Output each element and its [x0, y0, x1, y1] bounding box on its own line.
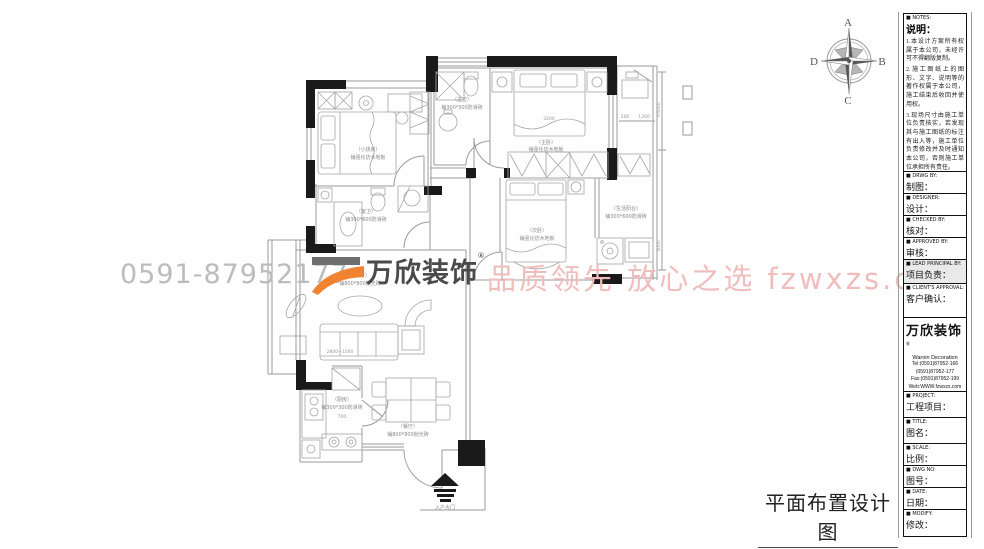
- watermark-logo: 万欣装饰®: [300, 250, 485, 302]
- svg-text:5000: 5000: [656, 240, 662, 252]
- drawing-title: 平面布置设计图: [758, 487, 898, 549]
- sheet-inner-border: [898, 12, 899, 538]
- company-name: 万欣装饰®: [906, 320, 964, 355]
- label-children-room: （小孩房）: [355, 146, 380, 153]
- kitchen-fixtures: [302, 368, 362, 458]
- svg-text:≈5000: ≈5000: [656, 102, 662, 117]
- svg-text:3200: 3200: [543, 116, 555, 122]
- field-principal: ■ LEAD PRINCIPAL BY:项目负责：: [904, 260, 966, 284]
- note-item: 3.现场尺寸由施工单位负责核实，若发现其与施工图纸的标注有出入等，施工单位负责修…: [906, 112, 964, 173]
- company-tel2: (0591)87952-177: [916, 369, 954, 377]
- svg-text:铺800*800抛光砖: 铺800*800抛光砖: [387, 431, 429, 438]
- compass-north-label: A: [844, 17, 852, 29]
- watermark-slogan: 品质领先 放心之选 fzwxzs.com: [487, 256, 965, 298]
- company-web: Web:WWW.fzwxzs.com: [909, 384, 962, 392]
- sheet-outer-border: [971, 12, 972, 538]
- dining-furniture: [372, 378, 450, 422]
- note-item: 2.施工图纸上的图形、文字、说明等的著作权属于本公司，施工结束后收回并使用权。: [906, 66, 964, 109]
- notes-heading: 说明：: [906, 21, 964, 36]
- field-approved-by: ■ APPROVED BY:审核：: [904, 238, 966, 260]
- logo-swoosh-icon: [308, 262, 370, 296]
- compass-icon: A B C D: [810, 17, 886, 107]
- svg-text:1260: 1260: [638, 114, 650, 120]
- label-utility-balcony: （生活阳台）: [611, 205, 641, 212]
- title-block: ■ NOTES: 说明： 1.本设计方案所有权属于本公司，未经许可不得翻版复制。…: [903, 13, 967, 537]
- label-master-bath: （主卫）: [452, 96, 472, 103]
- compass-east-label: B: [878, 56, 885, 68]
- svg-text:铺强化仿木地板: 铺强化仿木地板: [350, 154, 385, 161]
- notes-section: ■ NOTES: 说明： 1.本设计方案所有权属于本公司，未经许可不得翻版复制。…: [904, 14, 966, 172]
- field-checked-by: ■ CHECKED BY:核对：: [904, 216, 966, 238]
- compass-south-label: C: [844, 95, 851, 107]
- guest-bath-fixtures: [318, 186, 428, 246]
- logo-text: 万欣装饰®: [366, 251, 485, 290]
- field-scale: ■ SCALE:比例：: [904, 444, 966, 466]
- master-bedroom-furniture: [492, 70, 608, 178]
- label-master-bedroom: （主卧）: [536, 139, 556, 146]
- label-kitchen: （厨房）: [332, 396, 352, 403]
- company-tel: Tel:(0591)87952-166: [912, 361, 958, 369]
- field-dwg-no: ■ DWG NO:图号：: [904, 466, 966, 488]
- balcony-furniture: [597, 72, 653, 264]
- field-date: ■ DATE:日期：: [904, 488, 966, 510]
- svg-text:700: 700: [338, 414, 347, 420]
- company-block: 万欣装饰® Waroin Decoration Tel:(0591)87952-…: [904, 318, 966, 392]
- svg-text:2800+1000: 2800+1000: [327, 349, 354, 355]
- svg-text:铺强化仿木地板: 铺强化仿木地板: [519, 235, 554, 242]
- label-dining: （餐厅）: [398, 423, 418, 430]
- label-guest-bath: （客卫）: [356, 208, 376, 215]
- field-client-approval: ■ CLIENT'S APPROVAL:客户确认：: [904, 284, 966, 318]
- field-title: ■ TITLE:图名：: [904, 418, 966, 444]
- compass-west-label: D: [810, 56, 818, 68]
- company-fax: Fax:(0591)87952-199: [911, 376, 959, 384]
- svg-text:200: 200: [621, 114, 630, 120]
- field-modify: ■ MODIFY:修改：: [904, 510, 966, 536]
- field-project: ■ PROJECT:工程项目：: [904, 392, 966, 418]
- children-room-furniture: [318, 92, 429, 174]
- field-drwg-by: ■ DRWG BY:制图：: [904, 172, 966, 194]
- svg-text:铺强化仿木地板: 铺强化仿木地板: [528, 146, 563, 153]
- svg-text:铺300*300防滑砖: 铺300*300防滑砖: [441, 104, 483, 111]
- field-designer: ■ DESIGNER:设计：: [904, 194, 966, 216]
- svg-text:铺300*600防滑砖: 铺300*600防滑砖: [605, 213, 647, 220]
- svg-text:铺300*600防滑砖: 铺300*600防滑砖: [345, 216, 387, 223]
- label-second-bedroom: （次卧）: [527, 227, 547, 234]
- note-item: 1.本设计方案所有权属于本公司，未经许可不得翻版复制。: [906, 38, 964, 64]
- drawing-sheet: （小孩房） 铺强化仿木地板 （主卫） 铺300*300防滑砖 （主卧） 铺强化仿…: [0, 0, 984, 549]
- label-entry: 入户大门: [435, 504, 455, 511]
- svg-text:铺300*300防滑砖: 铺300*300防滑砖: [321, 404, 363, 411]
